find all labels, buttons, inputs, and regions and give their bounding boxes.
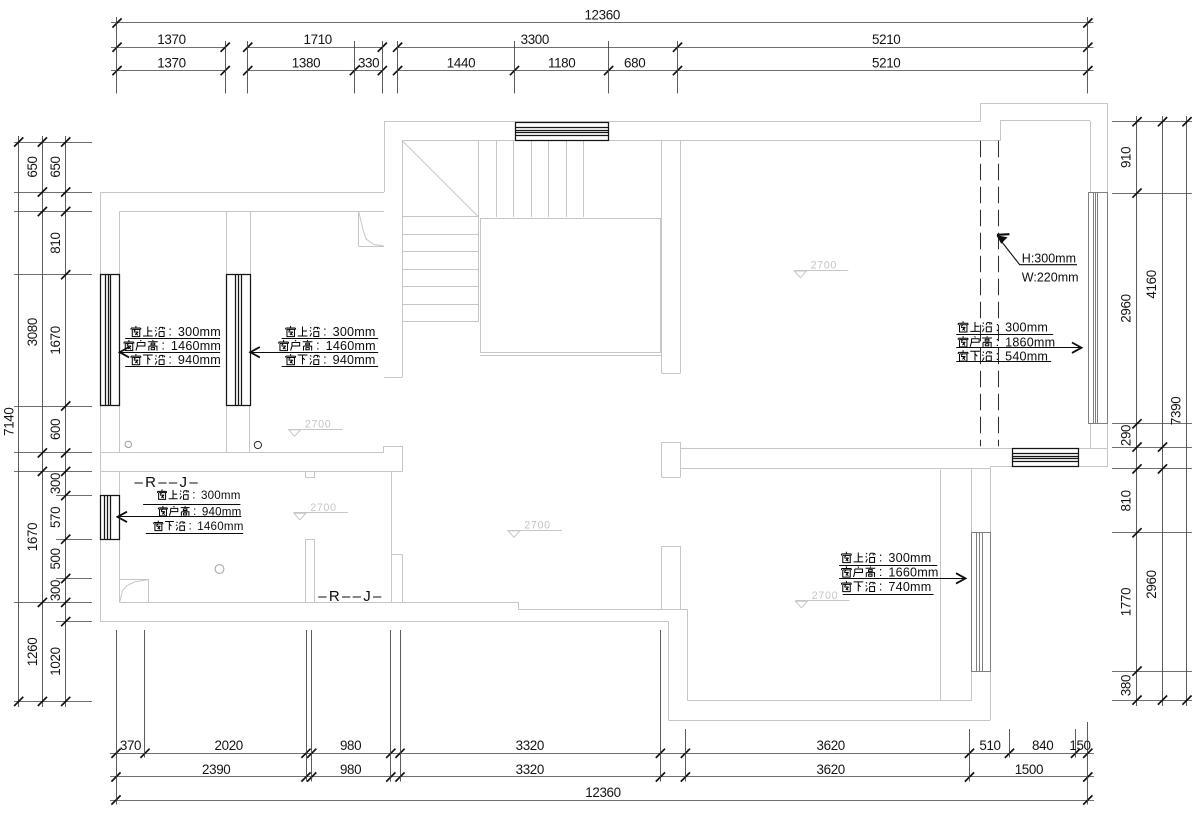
svg-text:980: 980 [340,738,361,753]
svg-text:2020: 2020 [215,738,243,753]
svg-text:1500: 1500 [1015,762,1043,777]
svg-text:940mm: 940mm [178,353,221,367]
svg-text:300: 300 [48,580,63,601]
svg-text::: : [189,520,192,533]
svg-text:1660mm: 1660mm [888,566,938,580]
svg-text:1380: 1380 [292,55,320,70]
svg-text::: : [323,325,327,339]
svg-text:2960: 2960 [1119,294,1134,322]
svg-text:810: 810 [1119,490,1134,511]
svg-text:290: 290 [1119,425,1134,446]
svg-text:2700: 2700 [310,502,336,514]
svg-text::: : [879,580,883,594]
svg-text::: : [316,339,320,353]
svg-text:500: 500 [48,548,63,569]
svg-text:1370: 1370 [157,32,185,47]
svg-text:2700: 2700 [524,519,550,531]
svg-text:1020: 1020 [48,647,63,675]
svg-text::: : [193,505,196,518]
svg-text:300: 300 [48,473,63,494]
svg-text:940mm: 940mm [333,353,376,367]
svg-text:1670: 1670 [25,523,40,551]
svg-text:1670: 1670 [48,326,63,354]
svg-text::: : [879,565,883,579]
svg-text:1770: 1770 [1119,588,1134,616]
svg-text::: : [168,353,172,367]
svg-text:7390: 7390 [1169,397,1184,425]
svg-text:–R––J–: –R––J– [135,474,201,491]
svg-text:1460mm: 1460mm [326,339,376,353]
svg-text:570: 570 [48,507,63,528]
svg-text:380: 380 [1119,675,1134,696]
svg-text:810: 810 [48,232,63,253]
svg-text:1370: 1370 [157,55,185,70]
svg-text:4160: 4160 [1144,270,1159,298]
svg-text::: : [323,353,327,367]
svg-text:3620: 3620 [817,738,845,753]
svg-text:370: 370 [120,738,141,753]
svg-text:3320: 3320 [516,762,544,777]
svg-text:510: 510 [979,738,1000,753]
svg-text:1710: 1710 [304,32,332,47]
svg-text:300mm: 300mm [1005,320,1048,334]
svg-text:1260: 1260 [25,638,40,666]
svg-text:5210: 5210 [872,55,900,70]
svg-text::: : [192,488,195,501]
svg-text:2390: 2390 [202,762,230,777]
svg-text:300mm: 300mm [333,325,376,339]
svg-text:3320: 3320 [516,738,544,753]
svg-text:5210: 5210 [872,32,900,47]
svg-text:300mm: 300mm [888,551,931,565]
svg-text:650: 650 [25,156,40,177]
svg-text:910: 910 [1119,147,1134,168]
svg-text:2960: 2960 [1144,570,1159,598]
svg-text:12360: 12360 [585,785,621,800]
svg-text:600: 600 [48,419,63,440]
svg-text::: : [996,320,1000,334]
svg-text:3300: 3300 [521,32,549,47]
svg-text:300mm: 300mm [178,325,221,339]
svg-text:1460mm: 1460mm [171,339,221,353]
svg-text::: : [879,550,883,564]
svg-text:1180: 1180 [548,55,575,70]
svg-text::: : [168,325,172,339]
svg-text:2700: 2700 [811,260,837,272]
svg-text::: : [996,349,1000,363]
svg-text::: : [996,335,1000,349]
svg-text:–R––J–: –R––J– [318,588,384,605]
svg-text:980: 980 [340,762,361,777]
svg-text:3620: 3620 [817,762,845,777]
svg-text:7140: 7140 [1,408,16,436]
svg-text:3080: 3080 [25,318,40,346]
svg-text:1440: 1440 [447,55,475,70]
svg-text:650: 650 [48,156,63,177]
svg-text:W:220mm: W:220mm [1022,271,1079,285]
svg-text:2700: 2700 [305,418,331,430]
svg-text:2700: 2700 [812,590,838,602]
svg-text:840: 840 [1032,738,1053,753]
svg-text:12360: 12360 [584,8,620,23]
svg-text:680: 680 [624,55,645,70]
svg-text:740mm: 740mm [888,580,931,594]
svg-text:1460mm: 1460mm [197,520,243,533]
svg-text:300mm: 300mm [201,489,241,502]
svg-text:H:300mm: H:300mm [1022,252,1076,266]
svg-text:330: 330 [358,55,379,70]
svg-text::: : [161,339,165,353]
